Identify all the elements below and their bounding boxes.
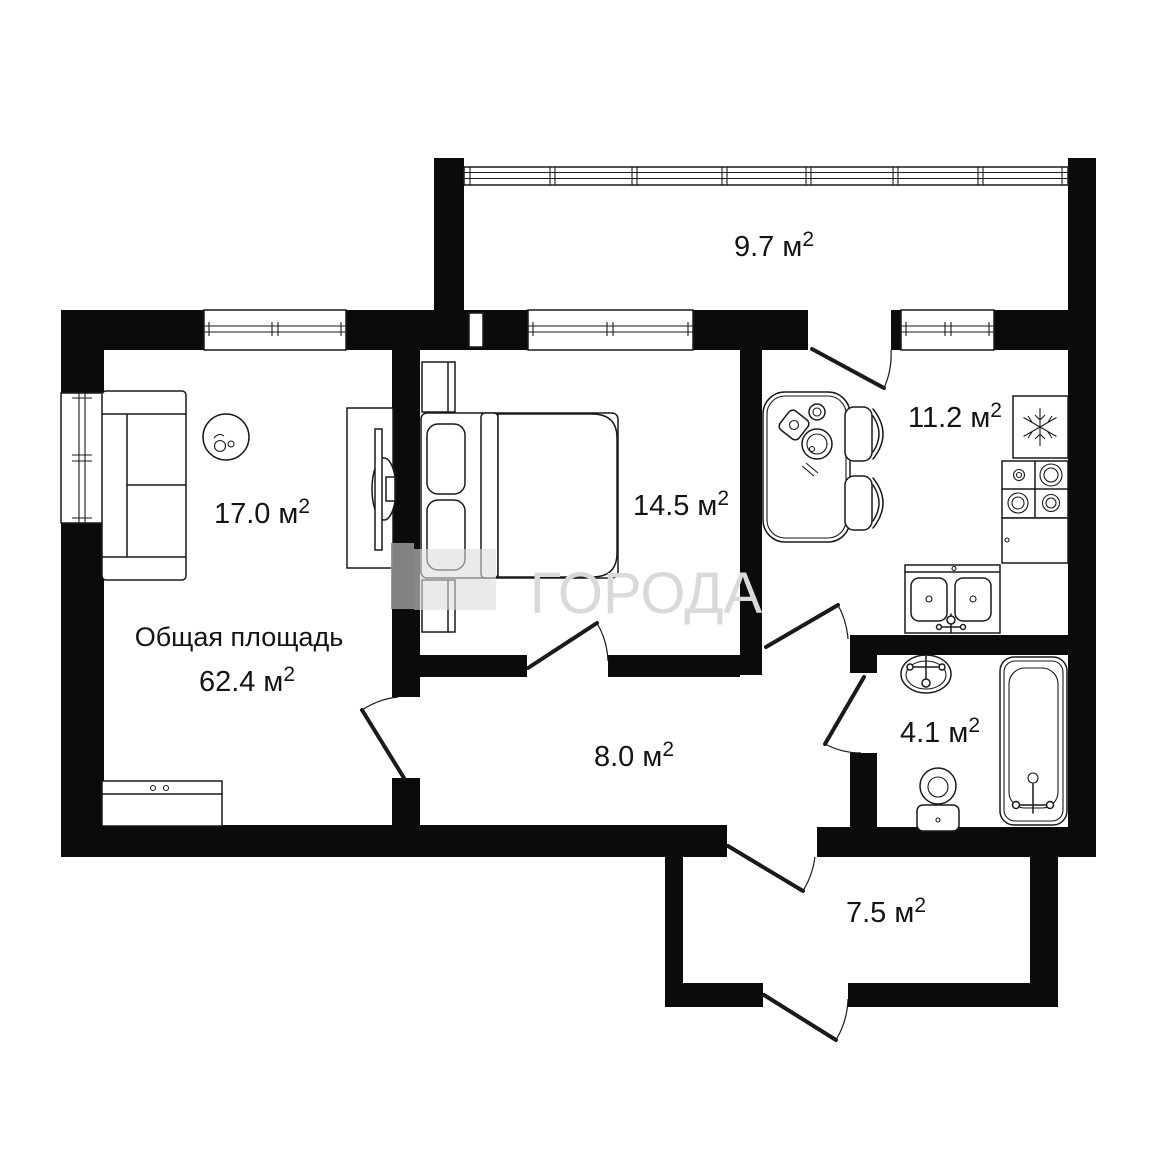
- toilet: [917, 768, 959, 831]
- watermark-logo-bar: [391, 543, 414, 609]
- label-bathroom: 4.1 м2: [900, 714, 980, 749]
- dining-table: [763, 392, 850, 542]
- bathroom-sink: [901, 655, 951, 693]
- stove: [1002, 461, 1068, 518]
- kitchen-door: [766, 605, 848, 647]
- balcony-door: [812, 349, 891, 388]
- watermark-logo-square: [414, 549, 496, 610]
- wall-slit: [469, 313, 483, 347]
- entrance-door: [764, 995, 848, 1040]
- bathtub: [1000, 657, 1067, 825]
- bathroom-door: [825, 677, 864, 753]
- chair-2: [845, 476, 883, 530]
- bedroom-window: [528, 310, 693, 350]
- nightstand-top: [422, 362, 455, 412]
- label-hallway: 8.0 м2: [594, 738, 674, 773]
- balcony-glazing: [464, 167, 1068, 185]
- kitchen-window: [901, 310, 994, 350]
- dresser: [102, 781, 222, 826]
- bedroom-door: [528, 623, 608, 668]
- balcony-door-opening: [808, 310, 891, 350]
- label-corridor: 7.5 м2: [846, 894, 926, 929]
- chair-1: [845, 407, 883, 461]
- floor-plan: ГОРОДА Общая площадь 9.7 м217.0 м214.5 м…: [0, 0, 1169, 1169]
- label-living_room: 17.0 м2: [214, 495, 310, 530]
- kitchen-sink: [905, 565, 1000, 633]
- living-room-window: [204, 310, 346, 350]
- side-table: [203, 414, 249, 460]
- sofa: [102, 391, 186, 580]
- hall-corridor-door: [728, 846, 815, 891]
- kitchen-counter: [1002, 518, 1068, 563]
- total-area-title: Общая площадь: [135, 622, 344, 652]
- label-bedroom: 14.5 м2: [633, 487, 729, 522]
- living-room-side-window: [61, 393, 104, 523]
- fridge: [1013, 396, 1068, 458]
- label-kitchen: 11.2 м2: [908, 399, 1002, 434]
- living-room-door: [362, 697, 404, 778]
- watermark-text: ГОРОДА: [530, 561, 763, 626]
- label-balcony: 9.7 м2: [734, 228, 814, 263]
- label-total_area: 62.4 м2: [199, 663, 295, 698]
- tv-stand: [347, 408, 396, 568]
